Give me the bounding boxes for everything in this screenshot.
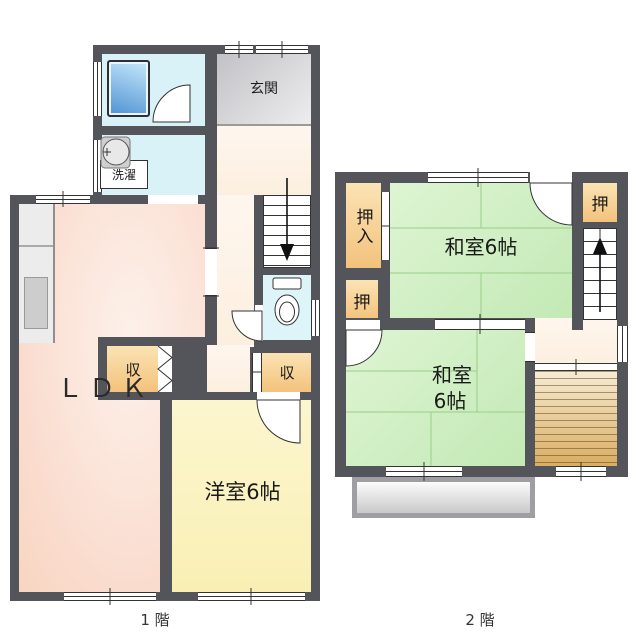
- room-toilet: [263, 275, 311, 340]
- wall: [102, 126, 205, 135]
- veranda-window: [556, 466, 606, 477]
- oshiire-sliding-door: [381, 192, 390, 260]
- tatami-upper-window: [428, 172, 528, 183]
- kitchen-sink: [24, 277, 48, 329]
- hall-veranda-window: [535, 363, 617, 371]
- floorplan: 洗濯: [0, 0, 640, 640]
- entrance-window: [225, 45, 253, 54]
- floor2-label: 2 階: [435, 607, 525, 631]
- storage-right-label: 収: [264, 360, 310, 384]
- tatami-lower-label-line2: 6帖: [398, 387, 502, 411]
- washroom-door-opening: [148, 195, 198, 204]
- wall: [572, 172, 583, 330]
- wall: [254, 340, 311, 347]
- washing-machine-pan: 洗濯: [100, 160, 148, 189]
- ldk-top-window: [36, 195, 90, 204]
- wall: [335, 268, 390, 280]
- wall: [254, 268, 311, 275]
- bathtub: [107, 60, 150, 117]
- ldk-bottom-window: [64, 592, 156, 601]
- storage-left-label: 収: [110, 357, 156, 381]
- hallway-upper: [217, 126, 311, 195]
- floor1-label: 1 階: [110, 607, 200, 631]
- laundry-label: 洗濯: [112, 166, 136, 183]
- western-room-window: [198, 592, 305, 601]
- western-room-door-opening: [257, 392, 300, 400]
- wall: [160, 392, 172, 601]
- tatami-upper-door-opening: [530, 172, 572, 183]
- hallway-lower: [207, 345, 250, 392]
- hallway-window: [617, 326, 628, 362]
- oshi-top-right-label: 押: [586, 191, 614, 213]
- bathroom-window: [93, 62, 102, 116]
- veranda: [535, 371, 617, 466]
- kitchen-counter-divider: [19, 245, 53, 247]
- tatami-lower-label-line1: 和室: [400, 361, 504, 385]
- entrance-door: [256, 45, 308, 54]
- balcony: [352, 477, 535, 518]
- fusuma-opening: [435, 319, 525, 330]
- stairs-floor2: [583, 228, 617, 320]
- wall: [10, 195, 19, 601]
- closet-right-sliding-door: [252, 353, 262, 392]
- entrance-label: 玄関: [228, 78, 300, 98]
- toilet-window: [311, 300, 320, 336]
- ldk-label: ＬＤＫ: [30, 368, 180, 404]
- tatami-lower-window: [386, 466, 462, 477]
- ldk-hall-opening: [205, 248, 217, 296]
- western-room-label: 洋室6帖: [175, 478, 310, 504]
- stairs-floor1: [263, 195, 311, 268]
- oshi-left-label: 押: [348, 289, 376, 311]
- wall: [617, 172, 628, 477]
- hall-tatami-sliding-door: [525, 332, 535, 362]
- tatami-upper-label: 和室6帖: [398, 232, 564, 258]
- oshiire-label: 押入: [350, 192, 376, 262]
- wall: [205, 45, 217, 203]
- toilet-door-opening: [255, 305, 263, 341]
- tatami-lower-door-opening: [346, 320, 380, 330]
- hallway-corridor: [217, 195, 254, 345]
- wall: [583, 222, 617, 228]
